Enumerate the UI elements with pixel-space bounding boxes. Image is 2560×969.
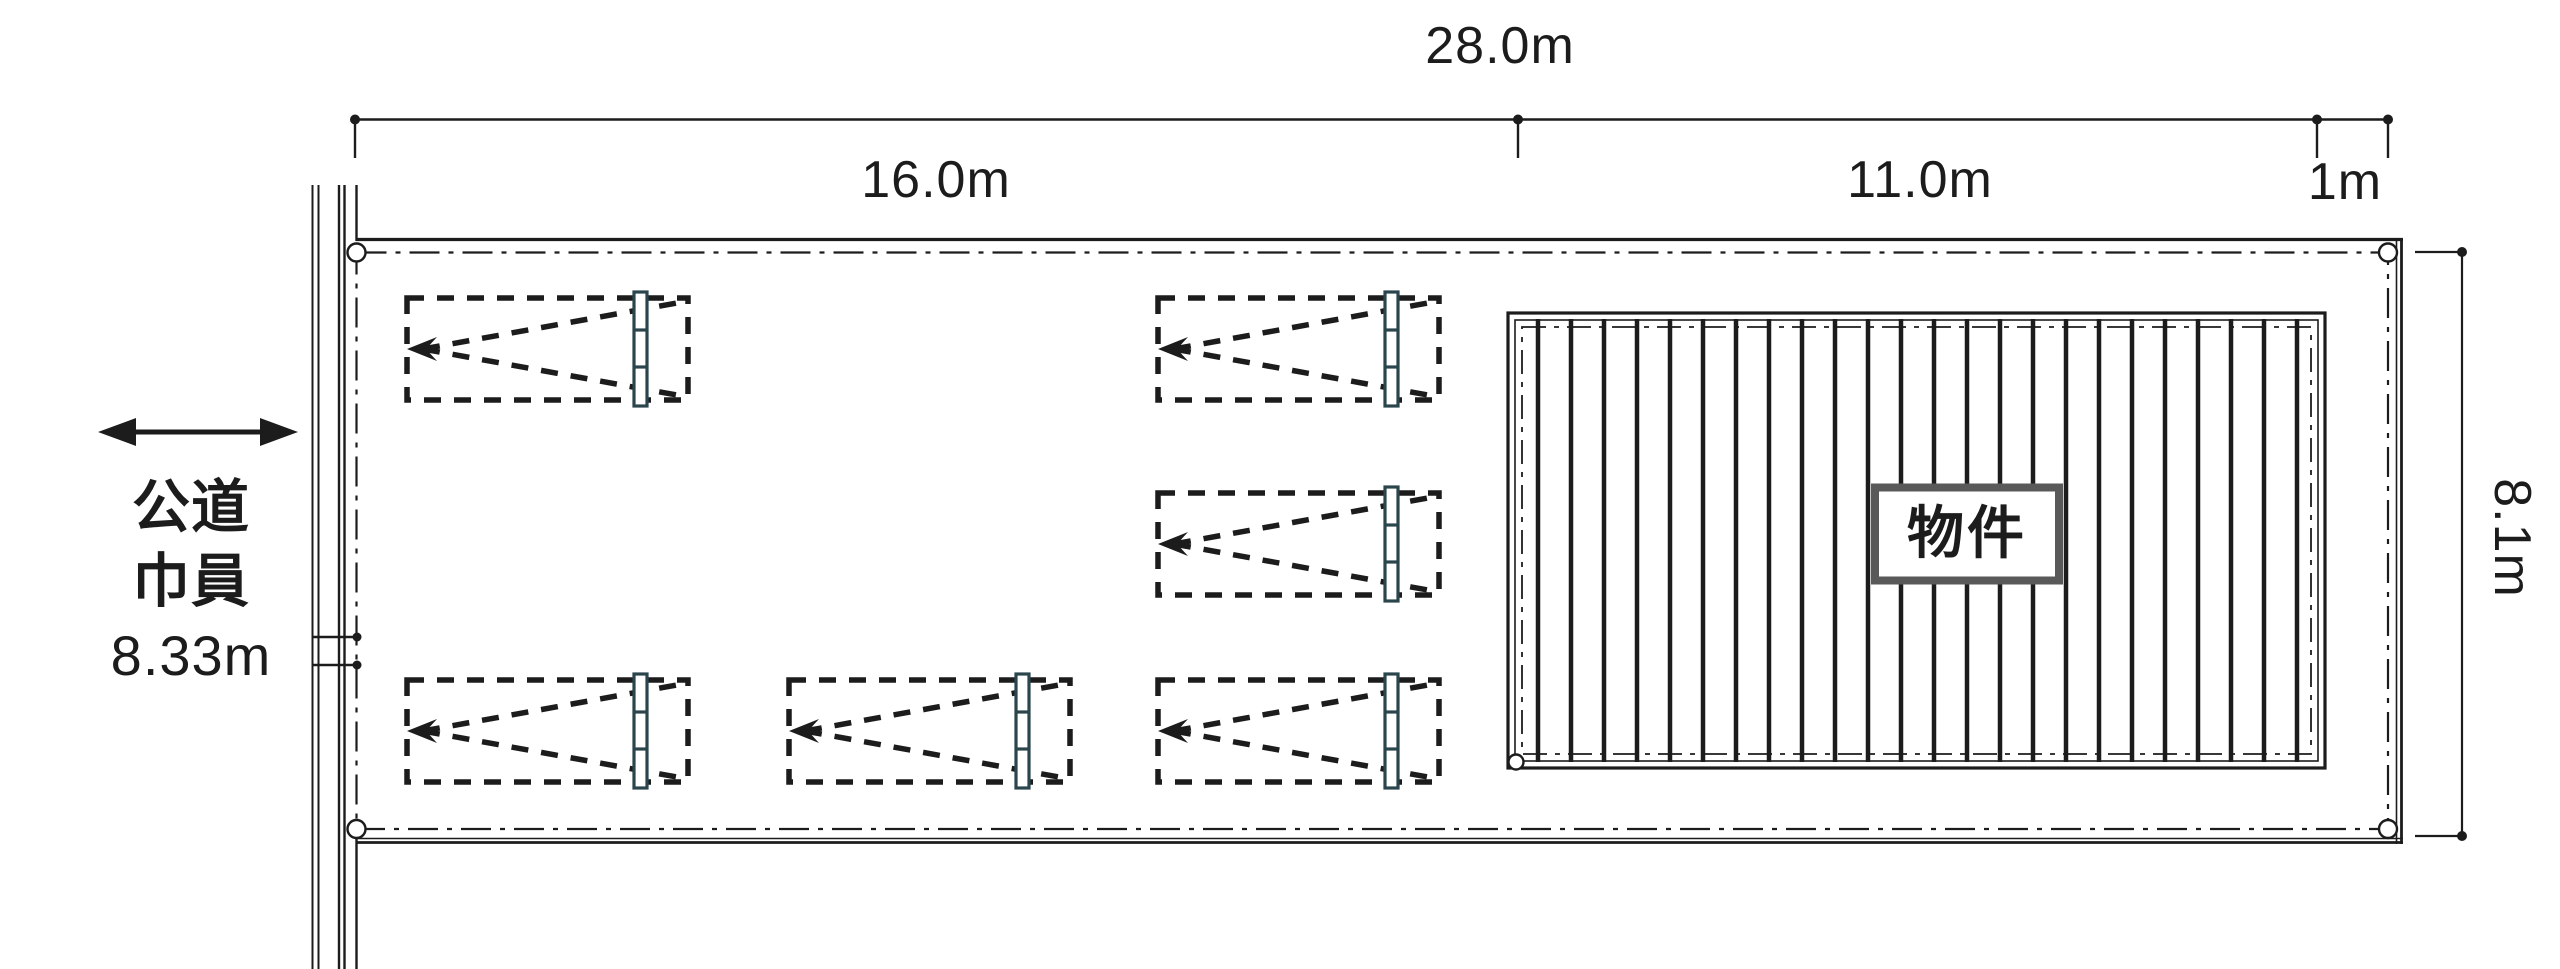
building-label: 物件 xyxy=(1871,484,2063,585)
boundary-corner-markers xyxy=(348,244,2398,839)
dimension-tick xyxy=(350,115,2393,159)
top-dimension-line xyxy=(350,115,2393,159)
road-width-arrow xyxy=(98,418,298,446)
road-label-line3: 8.33m xyxy=(111,619,272,693)
dim-total-width-label: 28.0m xyxy=(1425,16,1575,76)
car-parking-symbol xyxy=(407,674,688,788)
car-windshield-bar xyxy=(634,674,647,788)
car-parking-symbol xyxy=(1158,487,1439,601)
car-windshield-bar xyxy=(634,292,647,406)
car-windshield-bar xyxy=(1385,487,1398,601)
parking-symbols xyxy=(407,292,1439,788)
car-parking-symbol xyxy=(407,292,688,406)
site-plan: 28.0m 16.0m 11.0m 1m 8.1m 公道 巾員 8.33m 物件 xyxy=(0,0,2560,969)
dim-right-margin-label: 1m xyxy=(2308,152,2382,212)
site-plan-drawing xyxy=(0,0,2560,969)
car-parking-symbol xyxy=(789,674,1070,788)
car-windshield-bar xyxy=(1016,674,1029,788)
road-label-line1: 公道 xyxy=(111,471,272,545)
car-windshield-bar xyxy=(1385,292,1398,406)
car-windshield-bar xyxy=(1385,674,1398,788)
car-parking-symbol xyxy=(1158,674,1439,788)
right-dimension-line xyxy=(2415,247,2467,841)
building-corner-marker xyxy=(1509,755,1524,770)
road-width-label: 公道 巾員 8.33m xyxy=(111,471,272,693)
dim-building-section-label: 11.0m xyxy=(1847,150,1993,210)
car-parking-symbol xyxy=(1158,292,1439,406)
dim-depth-label: 8.1m xyxy=(2482,478,2542,598)
dim-left-section-label: 16.0m xyxy=(861,150,1011,210)
plot-boundary xyxy=(348,238,2404,844)
road-label-line2: 巾員 xyxy=(111,545,272,619)
road-lines xyxy=(312,185,362,969)
